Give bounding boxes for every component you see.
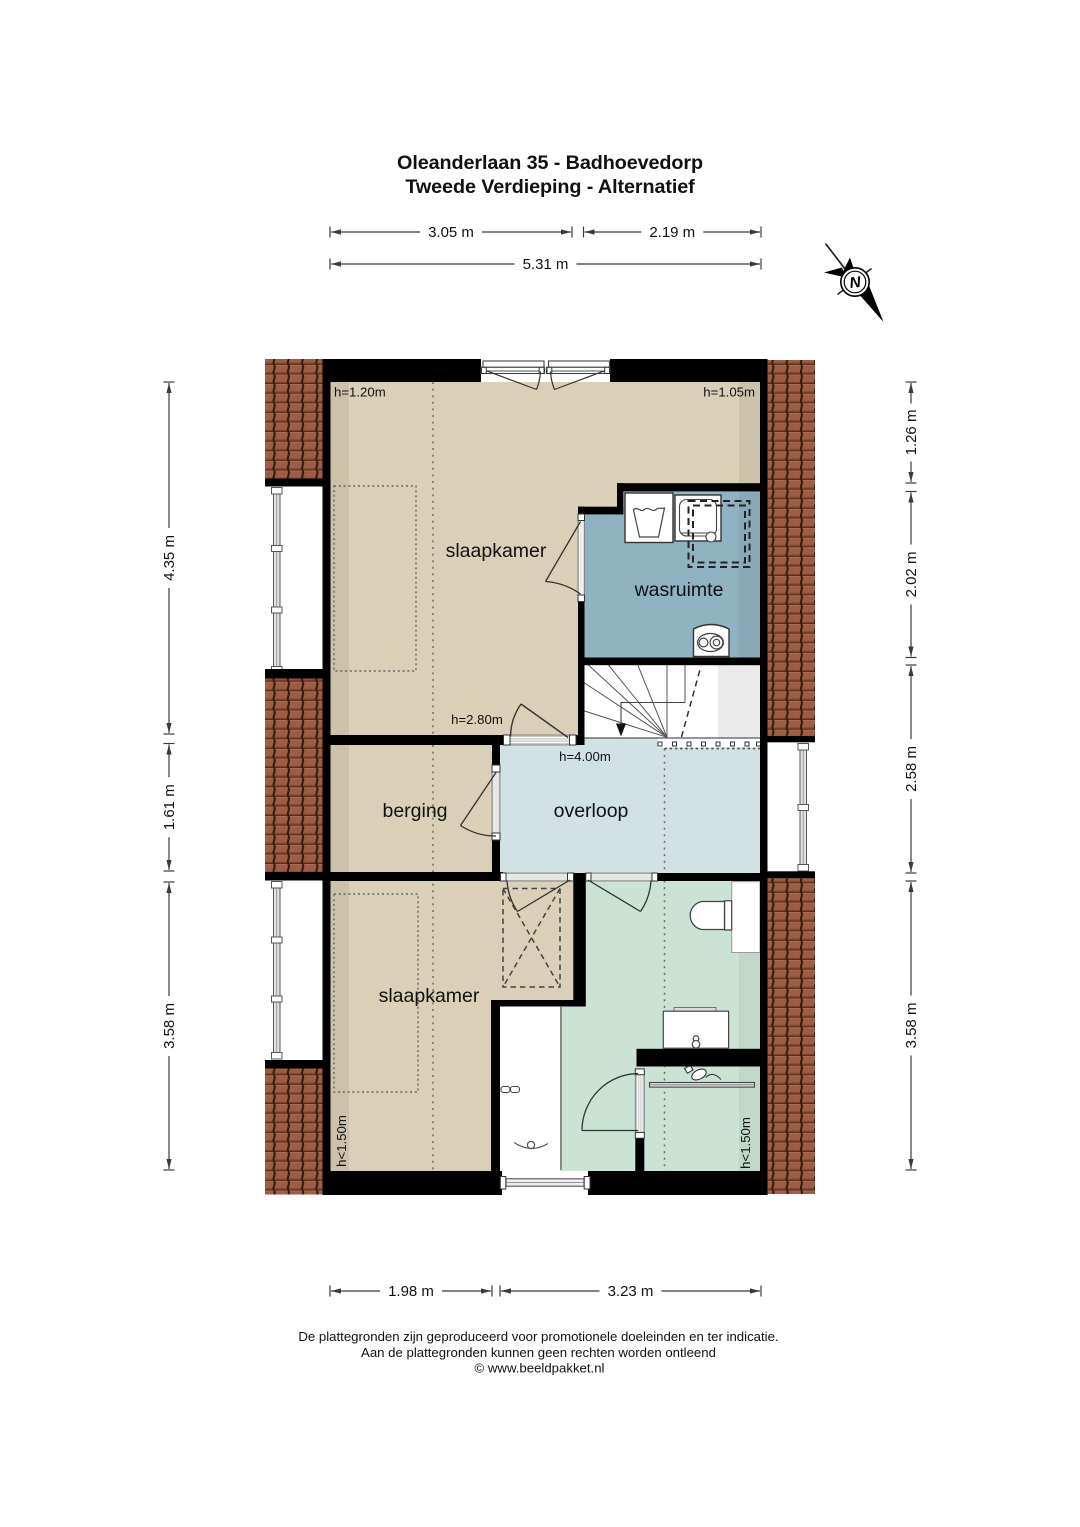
svg-text:h=2.80m: h=2.80m — [451, 712, 503, 727]
svg-text:1.26 m: 1.26 m — [903, 410, 920, 456]
svg-text:h<1.50m: h<1.50m — [738, 1117, 753, 1169]
svg-text:berging: berging — [382, 800, 447, 822]
svg-text:Tweede Verdieping - Alternatie: Tweede Verdieping - Alternatief — [405, 176, 695, 198]
svg-text:h=1.20m: h=1.20m — [334, 385, 386, 400]
svg-text:overloop: overloop — [554, 800, 629, 822]
svg-text:1.61 m: 1.61 m — [161, 784, 178, 830]
svg-text:h<1.50m: h<1.50m — [334, 1115, 349, 1167]
svg-text:4.35 m: 4.35 m — [161, 535, 178, 581]
svg-text:3.58 m: 3.58 m — [161, 1003, 178, 1049]
svg-text:3.23 m: 3.23 m — [608, 1283, 654, 1300]
svg-text:Oleanderlaan 35 - Badhoevedorp: Oleanderlaan 35 - Badhoevedorp — [397, 152, 703, 174]
svg-text:wasruimte: wasruimte — [634, 579, 724, 601]
svg-text:slaapkamer: slaapkamer — [446, 540, 547, 562]
svg-text:h=1.05m: h=1.05m — [703, 385, 755, 400]
svg-text:h=4.00m: h=4.00m — [559, 749, 611, 764]
svg-text:2.19 m: 2.19 m — [649, 224, 695, 241]
svg-text:2.58 m: 2.58 m — [903, 746, 920, 792]
svg-text:1.98 m: 1.98 m — [388, 1283, 434, 1300]
svg-text:2.02 m: 2.02 m — [903, 552, 920, 598]
svg-text:5.31 m: 5.31 m — [523, 256, 569, 273]
svg-text:© www.beeldpakket.nl: © www.beeldpakket.nl — [475, 1360, 605, 1375]
svg-text:slaapkamer: slaapkamer — [379, 985, 480, 1007]
svg-text:Aan de plattegronden kunnen ge: Aan de plattegronden kunnen geen rechten… — [361, 1345, 716, 1360]
svg-text:3.58 m: 3.58 m — [903, 1003, 920, 1049]
svg-text:3.05 m: 3.05 m — [428, 224, 474, 241]
svg-text:De plattegronden zijn geproduc: De plattegronden zijn geproduceerd voor … — [298, 1329, 778, 1344]
